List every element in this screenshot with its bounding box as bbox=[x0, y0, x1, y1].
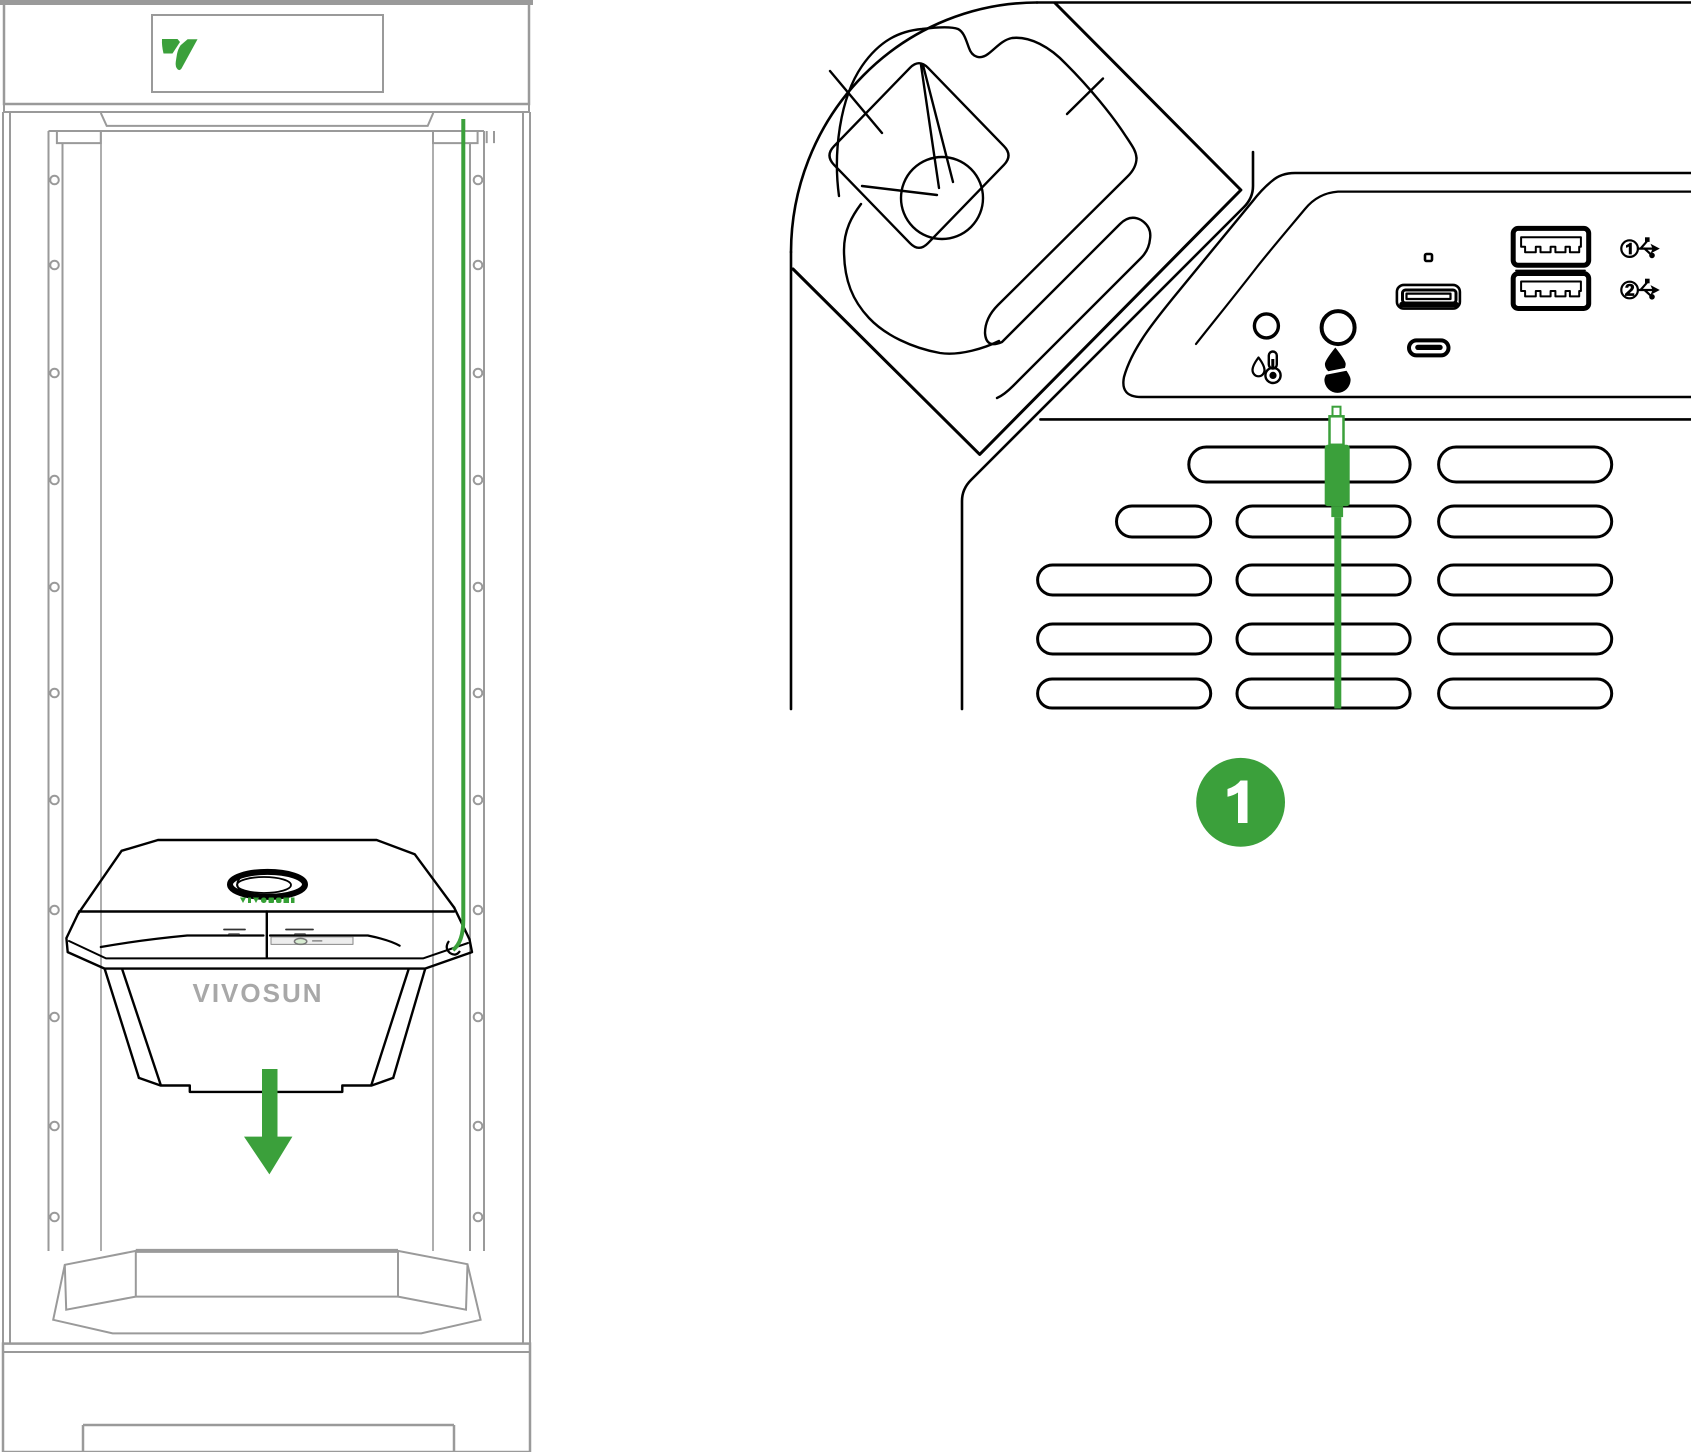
svg-text:VIVOSUN: VIVOSUN bbox=[192, 978, 323, 1008]
